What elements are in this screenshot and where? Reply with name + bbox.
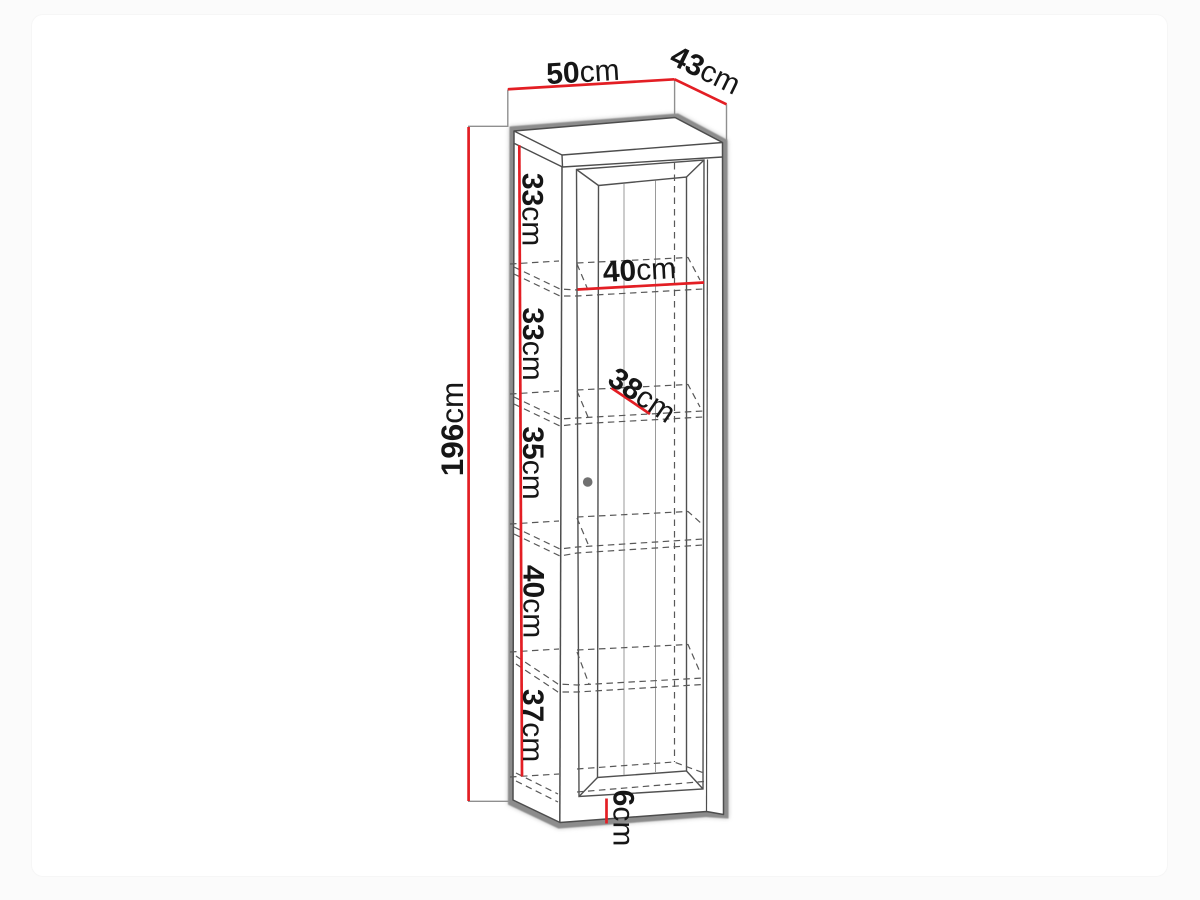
svg-text:50cm: 50cm [545, 54, 620, 91]
svg-text:43cm: 43cm [665, 40, 745, 102]
svg-text:35cm: 35cm [516, 426, 549, 499]
svg-text:6cm: 6cm [607, 790, 640, 847]
svg-text:33cm: 33cm [516, 173, 549, 246]
svg-text:40cm: 40cm [602, 252, 677, 289]
svg-text:37cm: 37cm [516, 689, 549, 762]
svg-text:40cm: 40cm [517, 565, 550, 638]
svg-text:196cm: 196cm [434, 382, 470, 477]
svg-text:33cm: 33cm [516, 307, 549, 380]
